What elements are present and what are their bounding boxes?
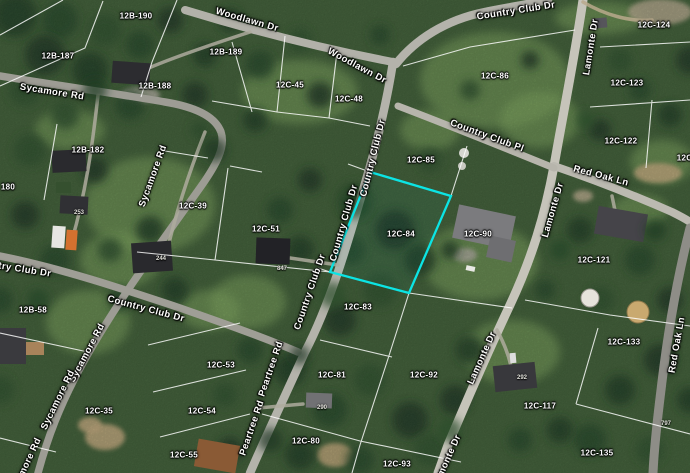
building bbox=[60, 195, 89, 214]
tree-overhang bbox=[550, 240, 570, 260]
building bbox=[510, 353, 517, 363]
building bbox=[131, 241, 173, 274]
building bbox=[26, 342, 44, 355]
building bbox=[51, 149, 86, 173]
tree-overhang bbox=[644, 219, 666, 241]
tree-overhang bbox=[258, 428, 282, 452]
building bbox=[592, 17, 608, 28]
gazebo bbox=[581, 289, 599, 307]
aerial-imagery bbox=[0, 0, 690, 473]
tree-overhang bbox=[27, 289, 49, 311]
tree-overhang bbox=[83, 78, 107, 102]
building bbox=[306, 393, 333, 409]
building bbox=[256, 237, 291, 264]
building bbox=[493, 362, 537, 392]
building bbox=[111, 61, 150, 86]
tree-overhang bbox=[576, 111, 594, 129]
building bbox=[65, 230, 77, 251]
tree-overhang bbox=[319, 282, 345, 308]
tree-overhang bbox=[290, 345, 310, 365]
building bbox=[56, 182, 71, 193]
tree-overhang bbox=[203, 138, 227, 162]
tree-overhang bbox=[438, 418, 462, 442]
building bbox=[51, 226, 66, 249]
satellite-map[interactable]: 12B-19012B-18712B-18912B-18812B-18218012… bbox=[0, 0, 690, 473]
